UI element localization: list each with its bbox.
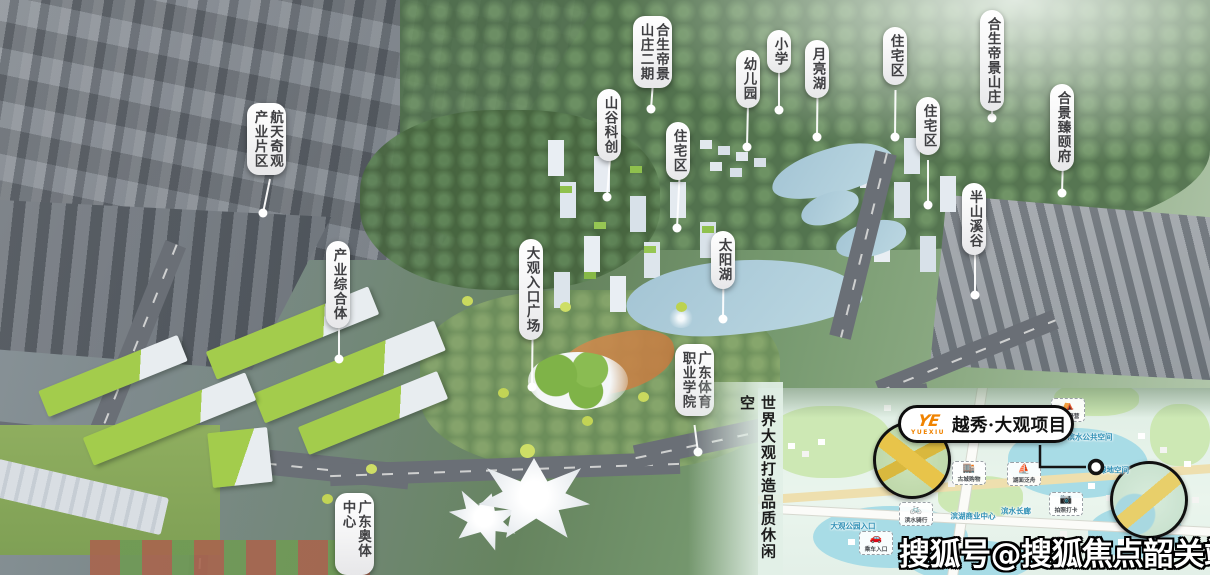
shop-icon: 🏬 — [963, 463, 975, 474]
map-badge-bike: 🚲滨水骑行 — [899, 502, 933, 526]
map-lawn — [766, 406, 891, 478]
map-badge-car: 🚗乘车入口 — [859, 531, 893, 555]
map-label-4: 滨水长廊 — [1001, 506, 1031, 517]
slogan-vertical-text: 世界大观打造品质休闲空 — [737, 395, 779, 573]
map-badge-caption: 乘车入口 — [865, 544, 888, 553]
callout-daguan-rukou-guangchang: 大观入口广场 — [519, 239, 543, 340]
map-badge-caption: 湖面泛舟 — [1013, 475, 1036, 484]
callout-hangtian-qiguan: 航天奇观 产业片区 — [247, 103, 286, 175]
bg-green-roof-caps — [560, 186, 572, 193]
map-lawn — [1150, 404, 1210, 466]
callout-taiyang-hu: 太阳湖 — [711, 231, 735, 289]
map-badge-shop: 🏬古城购物 — [952, 461, 986, 485]
lake-fountain — [668, 308, 694, 328]
watermark: 搜狐号@搜狐焦点韶关站 — [899, 529, 1210, 574]
callout-zhuzhaiqu-1: 住宅区 — [666, 122, 690, 180]
callout-hejing-zhenyifu: 合景臻颐府 — [1050, 84, 1074, 171]
map-label-2: 滨湖商业中心 — [951, 511, 996, 522]
callout-shangu-kechuang: 山谷科创 — [597, 89, 621, 161]
project-brand-pill: YE YUEXIU 越秀·大观项目 — [898, 405, 1074, 443]
callout-yueliang-hu: 月亮湖 — [805, 40, 829, 98]
callout-zhuzhaiqu-2: 住宅区 — [883, 27, 907, 85]
bg-sports-courts — [90, 540, 370, 575]
callout-youeryuan: 幼儿园 — [736, 50, 760, 108]
yuexiu-logo-wordmark: YUEXIU — [911, 430, 945, 436]
map-label-3: 大观公园入口 — [831, 521, 876, 532]
clover-building — [528, 352, 628, 410]
bg-yellow-trees — [462, 296, 473, 306]
yuexiu-logo: YE YUEXIU — [911, 413, 945, 436]
map-label-0: 滨水公共空间 — [1068, 432, 1113, 443]
green-roof-office — [207, 427, 272, 488]
callout-xiaoxue: 小学 — [767, 30, 791, 73]
callout-chanye-zongheti: 产业综合体 — [326, 241, 350, 328]
yuexiu-logo-monogram: YE — [916, 413, 939, 429]
aerial-masterplan-image: 航天奇观 产业片区合生帝景 山庄二期山谷科创住宅区幼儿园小学月亮湖住宅区合生帝景… — [0, 0, 1210, 575]
map-badge-caption: 滨水骑行 — [905, 515, 928, 524]
map-badge-caption: 拍照打卡 — [1055, 505, 1078, 514]
map-badge-boat: ⛵湖面泛舟 — [1007, 462, 1041, 486]
callout-zhuzhaiqu-3: 住宅区 — [916, 97, 940, 155]
callout-hesheng-dijing-erqi: 合生帝景 山庄二期 — [633, 16, 672, 88]
bike-icon: 🚲 — [910, 504, 922, 515]
project-title: 越秀·大观项目 — [952, 412, 1067, 437]
callout-guangdong-aoti-zhongxin: 广东奥体中心 — [335, 493, 374, 575]
map-label-1: 绿地空间 — [1099, 465, 1129, 476]
boat-icon: ⛵ — [1018, 464, 1030, 475]
bg-residential-towers — [548, 140, 564, 176]
car-icon: 🚗 — [870, 533, 882, 544]
map-buildings — [788, 443, 795, 449]
callout-hesheng-dijing-shanzhuang: 合生帝景山庄 — [980, 10, 1004, 111]
camera-icon: 📷 — [1060, 494, 1072, 505]
map-badge-camera: 📷拍照打卡 — [1049, 492, 1083, 516]
bg-lowrise-buildings — [700, 140, 712, 149]
callout-banshan-xigu: 半山溪谷 — [962, 183, 986, 255]
map-badge-caption: 古城购物 — [958, 474, 981, 483]
